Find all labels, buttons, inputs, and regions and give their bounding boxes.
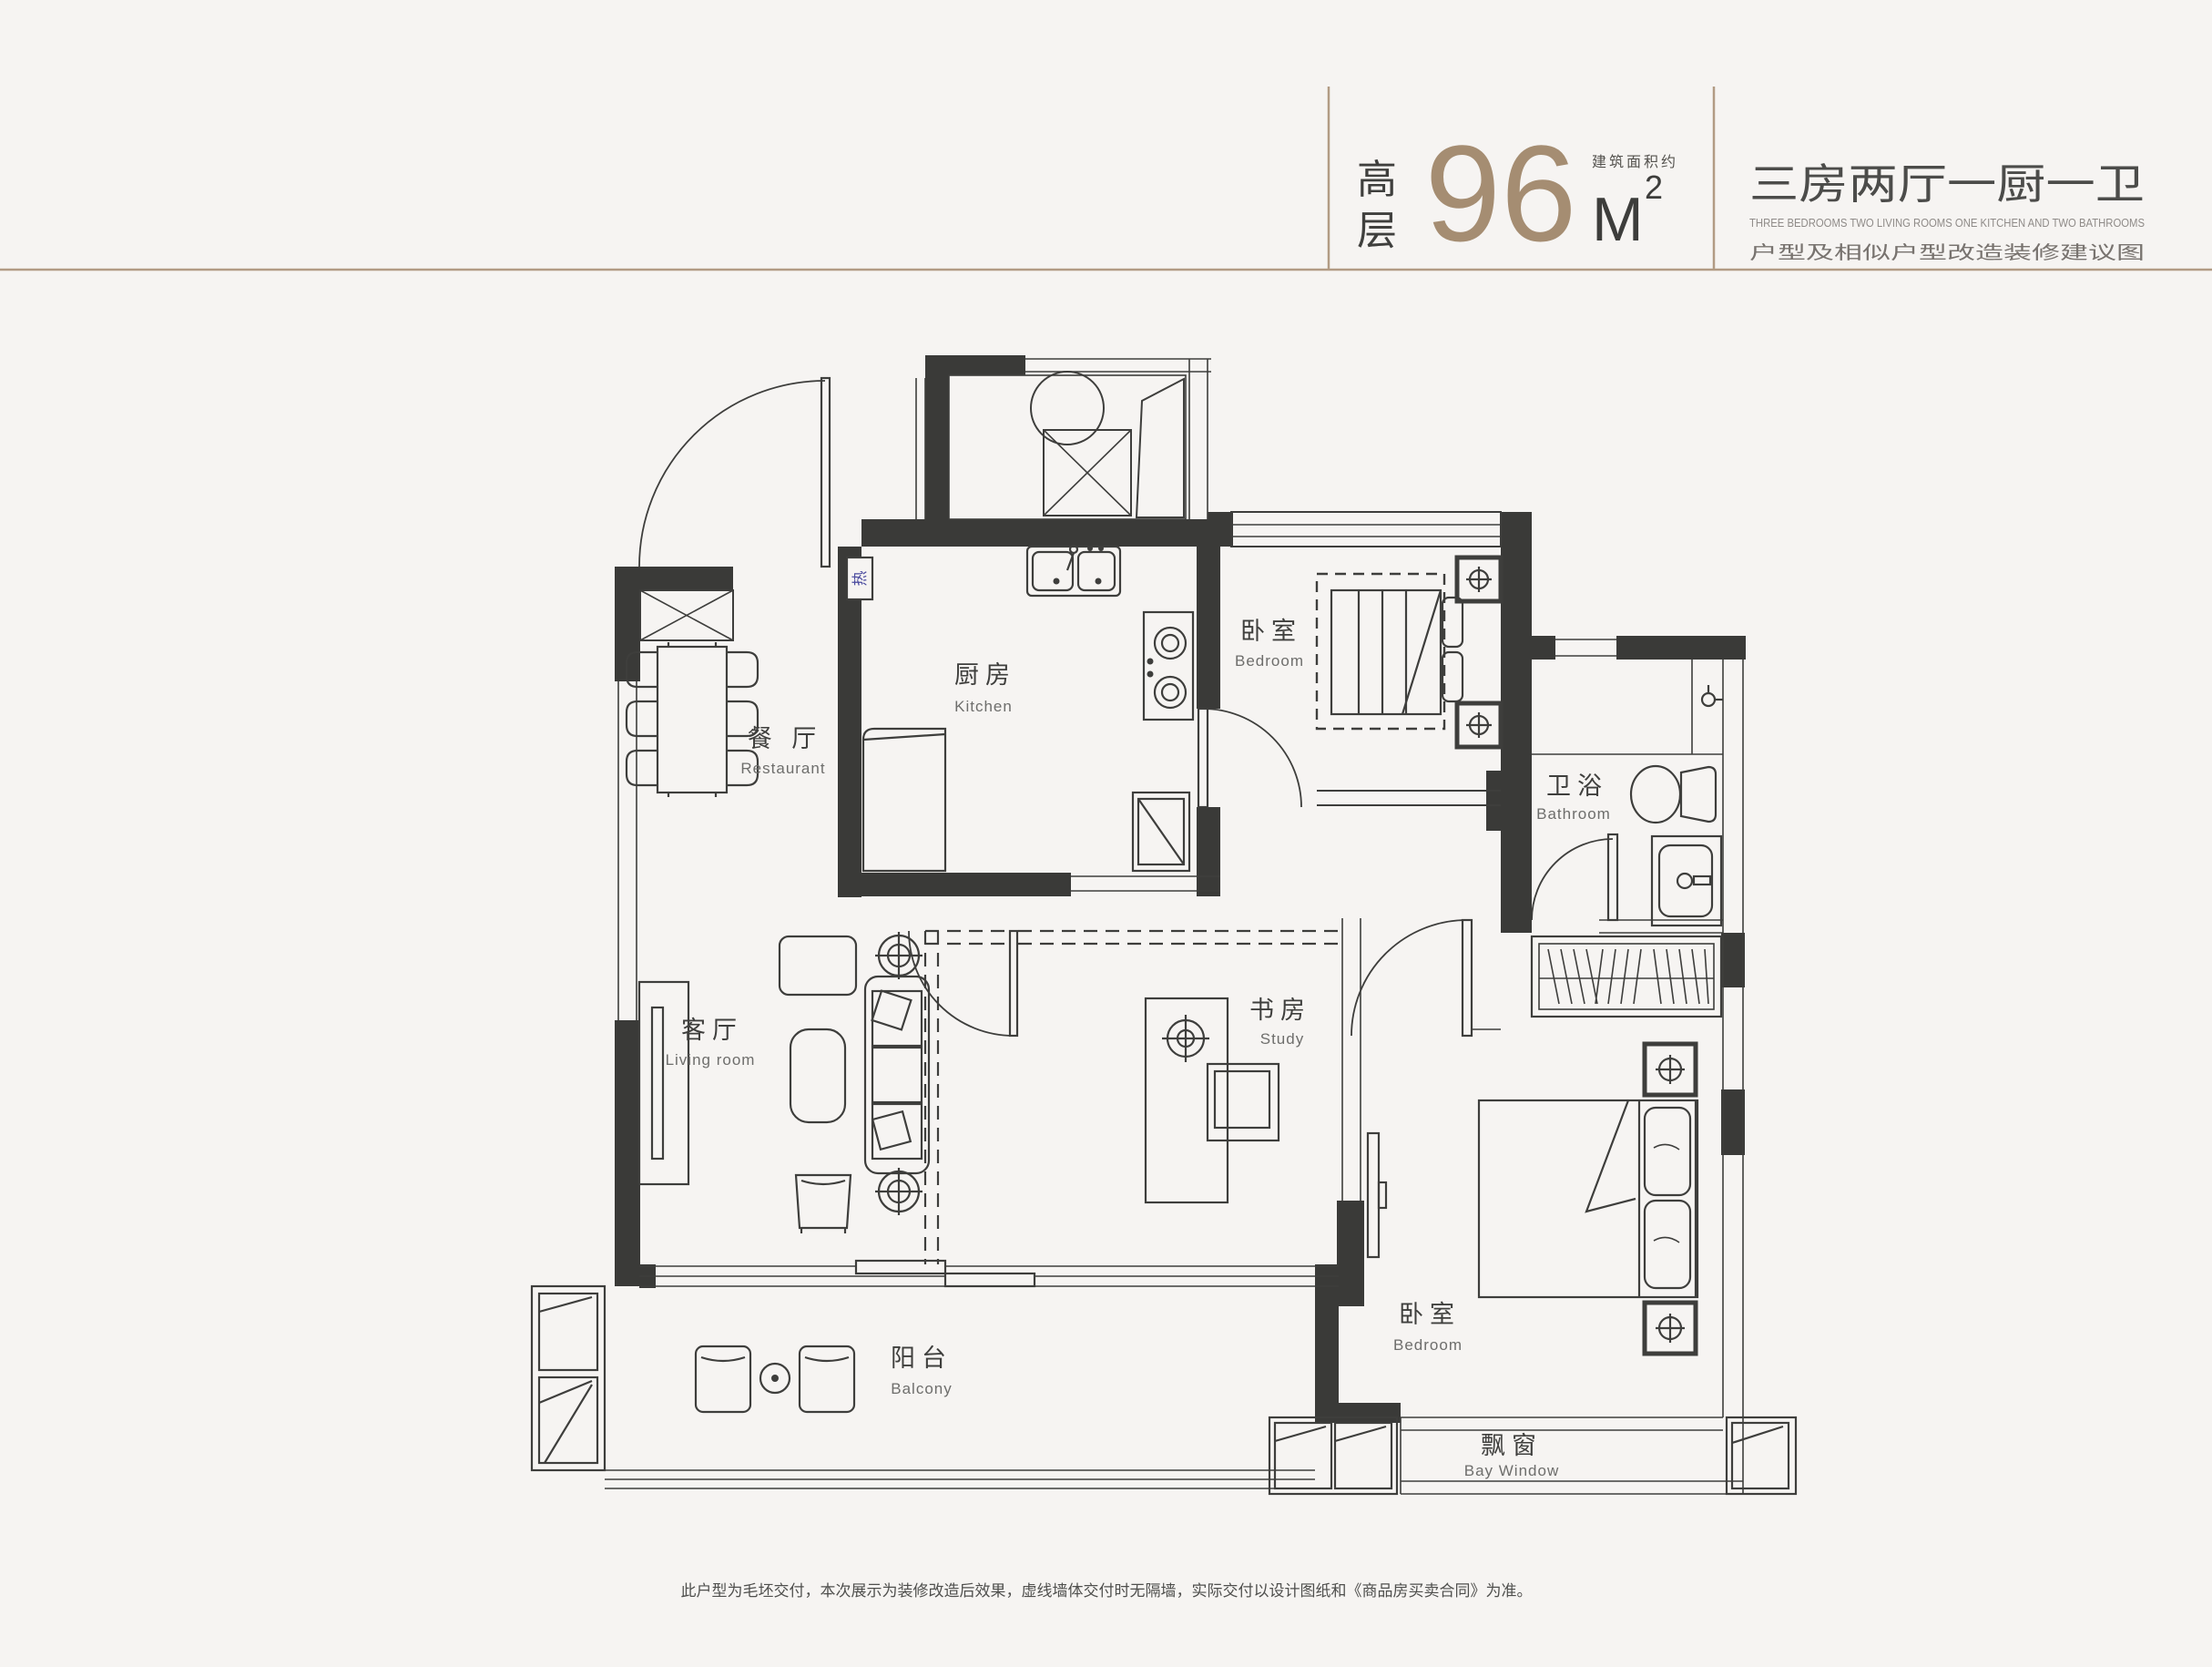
blanket-fold [1586,1100,1636,1212]
pillow [1442,652,1463,701]
stair-symbol-circle [1031,372,1104,445]
sofa-pillow [872,1111,911,1150]
sliding-door-panel-1 [856,1261,945,1273]
sofa [865,977,929,1173]
balcony-furniture [532,1286,854,1470]
nightstand [1457,703,1501,747]
toilet [1631,766,1716,823]
desk-chair [1208,1064,1279,1140]
kitchen-cabinet-small [1133,793,1189,871]
dining-window-box [640,590,733,640]
water-heater: 热 [847,557,872,599]
sliding-door-panel-2 [945,1273,1035,1286]
study-furniture [1146,998,1279,1202]
dining-furniture [627,642,758,797]
room-label-kitchen-zh: 厨房 [954,661,1016,689]
room-label-bay-window-en: Bay Window [1464,1462,1559,1479]
bed-top [1331,590,1441,714]
room-label-bathroom-zh: 卫浴 [1546,772,1608,800]
header-subtitle: 户型及相似户型改造装修建议图 [1749,242,2145,263]
pillow [1645,1108,1690,1195]
nightstand [1457,557,1501,601]
room-label-balcony-zh: 阳台 [891,1345,953,1372]
area-value: 96 [1425,117,1577,270]
balcony-chair [696,1346,750,1412]
stair-shaft [949,372,1186,519]
bathroom-door [1532,834,1617,920]
shaft-door-panel [1137,379,1184,517]
bed-main [1479,1100,1697,1297]
balcony-table [760,1364,790,1393]
ac-unit [1727,1417,1796,1494]
room-label-dining-zh: 餐 厅 [748,725,823,752]
bedroom-main-door [1351,920,1472,1036]
coffee-table [790,1029,845,1122]
room-label-living-zh: 客厅 [681,1017,743,1044]
balcony-ac-enclosure [532,1286,605,1470]
water-heater-label: 热 [851,571,869,587]
kitchen-fixtures: 热 [847,546,1193,871]
stove [1144,612,1193,720]
kitchen-cabinet [863,729,945,871]
room-label-balcony-en: Balcony [891,1380,952,1397]
room-label-bedroom-top-zh: 卧室 [1240,618,1302,645]
header-title-en: THREE BEDROOMS TWO LIVING ROOMS ONE KITC… [1749,217,2145,230]
pillow [1645,1201,1690,1288]
console-table [780,936,856,995]
room-label-kitchen-en: Kitchen [954,698,1013,715]
nightstand [1645,1044,1696,1095]
wardrobe [1532,936,1721,1017]
room-label-bay-window-zh: 飘窗 [1481,1432,1543,1459]
kitchen-sink [1027,546,1120,596]
ceiling-light-symbol [1162,1015,1209,1062]
sofa-pillow [872,991,912,1030]
area-unit-sup: 2 [1645,169,1663,206]
armchair [796,1175,851,1233]
nightstand [1645,1303,1696,1354]
walls [615,355,1746,1423]
room-label-bedroom-main-en: Bedroom [1393,1336,1463,1354]
room-label-dining-en: Restaurant [740,760,825,777]
header: 高 层 96 建筑面积约 M 2 三房两厅一厨一卫 THREE BEDROOMS… [0,87,2212,270]
area-label: 建筑面积约 [1592,154,1678,170]
area-unit: M [1592,185,1644,254]
tv-cabinet [639,982,688,1184]
ac-unit [1269,1417,1397,1494]
shower-head [1702,685,1723,706]
balcony-chair [800,1346,854,1412]
removable-walls [925,931,1339,1264]
bed-suggestion-outline [1317,574,1444,729]
living-furniture [639,932,929,1233]
entry-door [639,378,830,567]
speaker [875,932,923,979]
floor-plan-page: 高 层 96 建筑面积约 M 2 三房两厅一厨一卫 THREE BEDROOMS… [0,0,2212,1667]
header-title: 三房两厅一厨一卫 [1749,160,2145,208]
dining-table [657,647,727,793]
bedroom-top-door [1198,709,1301,807]
floor-type-char-2: 层 [1357,209,1397,253]
room-label-bedroom-main-zh: 卧室 [1399,1301,1461,1328]
bathroom-fixtures [1631,685,1723,926]
wardrobe-hangers [1548,949,1708,1004]
room-label-study-en: Study [1260,1030,1304,1048]
footer-disclaimer: 此户型为毛坯交付，本次展示为装修改造后效果，虚线墙体交付时无隔墙，实际交付以设计… [681,1582,1533,1600]
floor-plan: 热 [532,355,1796,1494]
bedroom-top-furniture [1317,557,1501,747]
room-label-living-en: Living room [666,1051,756,1069]
bedroom-tv [1368,1133,1386,1257]
room-label-bathroom-en: Bathroom [1536,805,1611,823]
floor-type-char-1: 高 [1357,158,1397,202]
bathroom-sink [1652,836,1721,926]
speaker [875,1168,923,1215]
pillow [1442,598,1463,647]
room-label-bedroom-top-en: Bedroom [1235,652,1304,670]
room-label-study-zh: 书房 [1249,997,1311,1024]
